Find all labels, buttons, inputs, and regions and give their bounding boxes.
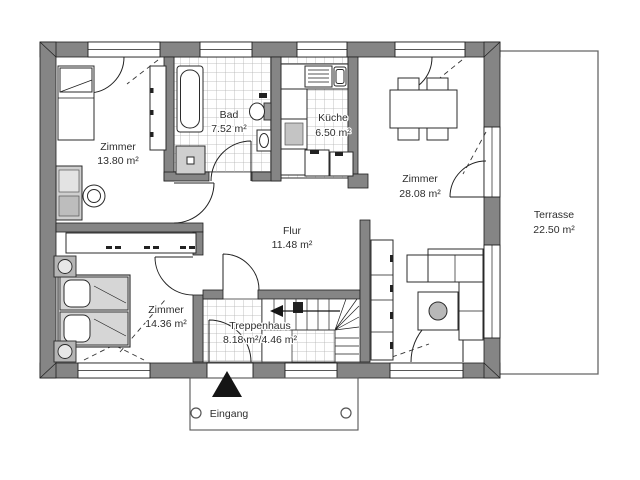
wardrobe-long-icon xyxy=(66,233,196,253)
fridge-icon xyxy=(281,119,307,149)
living-furniture xyxy=(371,78,483,360)
label-room-area: 11.48 m² xyxy=(272,239,313,251)
label-room-area: 7.52 m² xyxy=(211,123,247,135)
label-room-area: 13.80 m² xyxy=(97,155,139,167)
door-terrace xyxy=(450,127,500,197)
label-room-name: Treppenhaus xyxy=(229,320,291,332)
window-living-right xyxy=(484,245,500,338)
label-room-area: 8.18 m²/4.46 m² xyxy=(223,334,298,346)
label-room-name: Küche xyxy=(318,112,348,124)
desk-chair-icon xyxy=(83,185,105,207)
window-bath xyxy=(200,42,252,57)
door-bedroom1 xyxy=(174,183,214,223)
label-entrance: Eingang xyxy=(210,408,249,420)
desk-icon xyxy=(56,166,82,220)
label-room-name: Zimmer xyxy=(402,173,438,185)
stove-icon xyxy=(305,66,332,87)
label-room-name: Flur xyxy=(283,225,302,237)
bedroom2-furniture xyxy=(54,233,196,362)
window-bedroom1 xyxy=(88,42,160,57)
dining-table-icon xyxy=(390,78,457,140)
wardrobe-icon xyxy=(150,66,166,150)
floorplan-canvas: Zimmer 13.80 m² Bad 7.52 m² Küche 6.50 m… xyxy=(0,0,640,480)
coffee-table-icon xyxy=(418,292,458,330)
shower-icon xyxy=(176,146,205,174)
kitchen-sink-icon xyxy=(334,67,346,86)
porch-post xyxy=(191,408,201,418)
label-room-area: 14.36 m² xyxy=(145,318,187,330)
window-living-top xyxy=(395,42,465,57)
label-room-name: Terrasse xyxy=(534,209,574,221)
nightstand-icon xyxy=(54,256,76,277)
label-room-name: Zimmer xyxy=(148,304,184,316)
bath-accessory xyxy=(259,93,267,98)
kitchen-cabinet xyxy=(281,149,307,175)
floorplan-page: Zimmer 13.80 m² Bad 7.52 m² Küche 6.50 m… xyxy=(0,0,640,480)
label-room-name: Bad xyxy=(220,109,239,121)
label-room-area: 22.50 m² xyxy=(533,224,575,236)
shelf-unit-icon xyxy=(371,240,393,360)
single-bed-icon xyxy=(58,66,94,140)
toilet-icon xyxy=(250,103,272,120)
label-room-area: 6.50 m² xyxy=(315,127,351,139)
window-bedroom2 xyxy=(78,363,150,378)
nightstand-icon xyxy=(54,341,76,362)
label-room-area: 28.08 m² xyxy=(399,188,441,200)
label-room-name: Zimmer xyxy=(100,141,136,153)
bathtub-icon xyxy=(177,66,203,132)
double-bed-icon xyxy=(58,275,130,347)
porch-post xyxy=(341,408,351,418)
entrance-porch xyxy=(190,371,358,430)
kitchen-cabinet xyxy=(281,89,307,119)
sink-icon xyxy=(257,130,271,151)
door-stairhall xyxy=(223,254,259,290)
window-kitchen xyxy=(297,42,347,57)
